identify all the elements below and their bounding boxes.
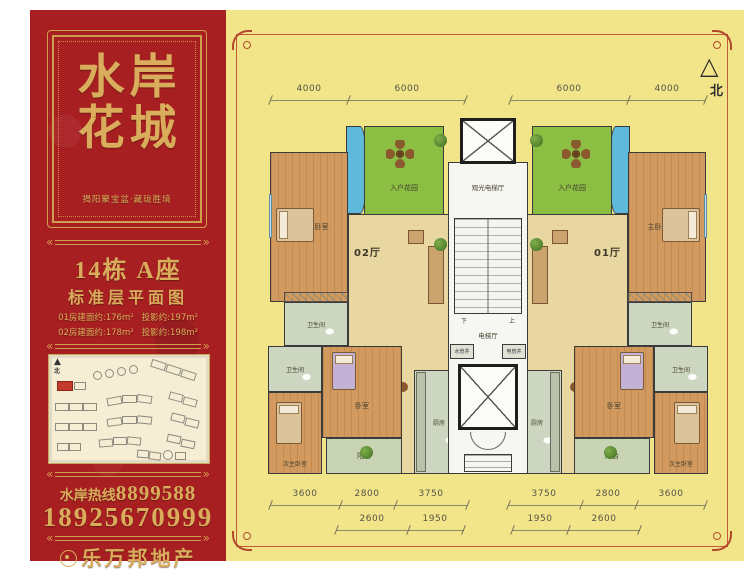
agency-logo-icon	[60, 550, 77, 567]
stairs-up-label: 上	[509, 316, 515, 325]
hall-top-label: 观光电梯厅	[472, 182, 505, 192]
dim-top-right: 6000 4000	[510, 86, 706, 101]
floor-plan: 入户花园 主卧室 卫生间 卫生间 02厅 餐厅 卧室	[268, 118, 708, 474]
sitemap-north-label: 北	[54, 368, 60, 375]
bed-icon	[276, 402, 302, 444]
sitemap-building-14-highlight	[57, 381, 73, 391]
room-bathroom2-right: 卫生间	[654, 346, 708, 392]
plant-icon	[530, 134, 543, 147]
dim-bottom-right: 3750 2800 3600	[508, 491, 706, 506]
divider-arrow-right-icon: »	[201, 469, 212, 479]
bed-icon	[620, 352, 644, 390]
garden-furniture-icon	[386, 140, 414, 168]
water-feature-right	[610, 126, 630, 214]
sitemap-building	[93, 371, 102, 380]
ornament-divider: «»	[44, 340, 212, 352]
corner-flourish-icon	[704, 523, 734, 553]
window-icon	[269, 194, 272, 238]
window-icon	[704, 194, 707, 238]
dim-value: 2600	[592, 514, 617, 524]
staircase	[454, 218, 522, 314]
project-subtitle: 揭阳聚宝盆·藏珑胜境	[54, 193, 200, 205]
sitemap-building	[69, 403, 83, 411]
armchair-icon	[552, 230, 568, 244]
site-map: ▲北	[48, 354, 210, 464]
dim-value: 2600	[360, 514, 385, 524]
dim-bottom-left: 3600 2800 3750	[270, 491, 468, 506]
sitemap-building	[83, 403, 97, 411]
plant-icon	[530, 238, 543, 251]
electric-shaft: 电管井	[502, 344, 526, 359]
poster: 水岸 花城 揭阳聚宝盆·藏珑胜境 «» 14栋 A座 标准层平面图 01房建面约…	[30, 10, 744, 561]
hall-bottom-label: 电梯厅	[478, 330, 498, 340]
area-02-built: 02房建面约:178m²	[58, 326, 134, 338]
room-living-label-left: 02厅	[354, 244, 381, 259]
divider-arrow-left-icon: «	[44, 469, 55, 479]
dim-value: 2800	[596, 489, 621, 499]
sitemap-building	[99, 438, 114, 447]
sitemap-building	[107, 417, 123, 427]
sitemap-building	[113, 437, 127, 445]
water-feature-left	[346, 126, 366, 214]
bed-icon	[276, 208, 314, 242]
dim-value: 3600	[659, 489, 684, 499]
plant-icon	[434, 238, 447, 251]
wardrobe-icon	[628, 292, 692, 302]
sofa-icon	[428, 246, 444, 304]
corner-flourish-icon	[230, 523, 260, 553]
sitemap-building	[105, 369, 114, 378]
corner-flourish-icon	[230, 28, 260, 58]
dim-value: 6000	[557, 84, 582, 94]
armchair-icon	[408, 230, 424, 244]
sitemap-building	[175, 452, 186, 460]
sitemap-building	[137, 394, 153, 404]
hotline-number-2: 18925670999	[30, 502, 226, 533]
sitemap-building	[69, 443, 81, 451]
sitemap-building	[184, 417, 200, 428]
garden-furniture-icon	[562, 140, 590, 168]
dim-bottom2-right: 1950 2600	[512, 516, 640, 531]
agency-row: 乐万邦地产	[30, 542, 226, 571]
sitemap-building	[122, 416, 137, 424]
project-title-line1: 水岸	[59, 53, 200, 104]
plant-icon	[360, 446, 373, 459]
agency-name: 乐万邦地产	[82, 548, 197, 570]
sitemap-building	[180, 439, 195, 450]
plant-icon	[434, 134, 447, 147]
sitemap-north-icon: ▲北	[54, 358, 61, 375]
sitemap-building	[180, 369, 197, 381]
sitemap-building	[127, 436, 142, 445]
building-name: 14栋 A座	[30, 250, 226, 285]
sitemap-building	[74, 382, 86, 390]
area-info-row2: 02房建面约:178m² 投影约:198m²	[30, 326, 226, 338]
dim-top-left: 4000 6000	[270, 86, 466, 101]
bed-icon	[674, 402, 700, 444]
sitemap-building	[149, 451, 162, 461]
plan-page: △ 北 4000 6000 6000 4000 入户花园 主卧室	[226, 10, 744, 561]
plant-icon	[604, 446, 617, 459]
dim-value: 2800	[355, 489, 380, 499]
dim-value: 3600	[293, 489, 318, 499]
entrance-steps	[464, 454, 512, 472]
sitemap-building	[166, 434, 181, 445]
sitemap-building	[182, 396, 198, 407]
sitemap-building	[137, 449, 150, 458]
area-01-projected: 投影约:197m²	[142, 311, 198, 323]
sitemap-building	[137, 415, 153, 425]
dim-value: 4000	[655, 84, 680, 94]
kitchen-counter-icon	[416, 372, 426, 472]
dim-bottom2-left: 2600 1950	[336, 516, 464, 531]
area-02-projected: 投影约:198m²	[142, 326, 198, 338]
bed-icon	[662, 208, 700, 242]
sitemap-building	[163, 450, 173, 460]
sitemap-building	[55, 423, 69, 431]
north-arrow-icon: △	[700, 54, 718, 78]
bed-icon	[332, 352, 356, 390]
divider-arrow-right-icon: »	[201, 237, 212, 247]
sitemap-building	[57, 443, 69, 451]
elevator-shaft-top	[460, 118, 516, 164]
room-bathroom2-left: 卫生间	[268, 346, 322, 392]
divider-arrow-left-icon: «	[44, 341, 55, 351]
sitemap-building	[165, 364, 182, 376]
sitemap-building	[170, 412, 186, 423]
sitemap-building	[55, 403, 69, 411]
dim-value: 3750	[419, 489, 444, 499]
sitemap-building	[106, 396, 122, 406]
room-bathroom1-right: 卫生间	[628, 302, 692, 346]
divider-arrow-left-icon: «	[44, 237, 55, 247]
sitemap-building	[122, 395, 137, 403]
dim-value: 6000	[395, 84, 420, 94]
dim-value: 1950	[423, 514, 448, 524]
dim-value: 1950	[528, 514, 553, 524]
room-living-label-right: 01厅	[594, 244, 621, 259]
sitemap-building	[129, 365, 138, 374]
north-label: 北	[710, 80, 723, 99]
ornament-divider: «»	[44, 468, 212, 480]
water-pipe-shaft: 水管井	[450, 344, 474, 359]
left-panel: 水岸 花城 揭阳聚宝盆·藏珑胜境 «» 14栋 A座 标准层平面图 01房建面约…	[30, 10, 226, 561]
elevator-shaft-bottom	[458, 364, 518, 430]
title-frame: 水岸 花城 揭阳聚宝盆·藏珑胜境	[52, 35, 202, 223]
area-01-built: 01房建面约:176m²	[58, 311, 134, 323]
ornament-divider: «»	[44, 236, 212, 248]
wardrobe-icon	[284, 292, 348, 302]
sitemap-building	[83, 423, 97, 431]
sitemap-building	[150, 359, 167, 371]
room-bathroom1-left: 卫生间	[284, 302, 348, 346]
divider-arrow-right-icon: »	[201, 341, 212, 351]
stairs-down-label: 下	[461, 316, 467, 325]
floor-plan-type: 标准层平面图	[30, 284, 226, 308]
sitemap-building	[69, 423, 83, 431]
area-info-row1: 01房建面约:176m² 投影约:197m²	[30, 311, 226, 323]
sitemap-building	[168, 391, 184, 402]
dim-value: 4000	[297, 84, 322, 94]
dim-value: 3750	[532, 489, 557, 499]
project-title-line2: 花城	[59, 104, 200, 155]
kitchen-counter-icon	[550, 372, 560, 472]
sofa-icon	[532, 246, 548, 304]
sitemap-building	[117, 367, 126, 376]
